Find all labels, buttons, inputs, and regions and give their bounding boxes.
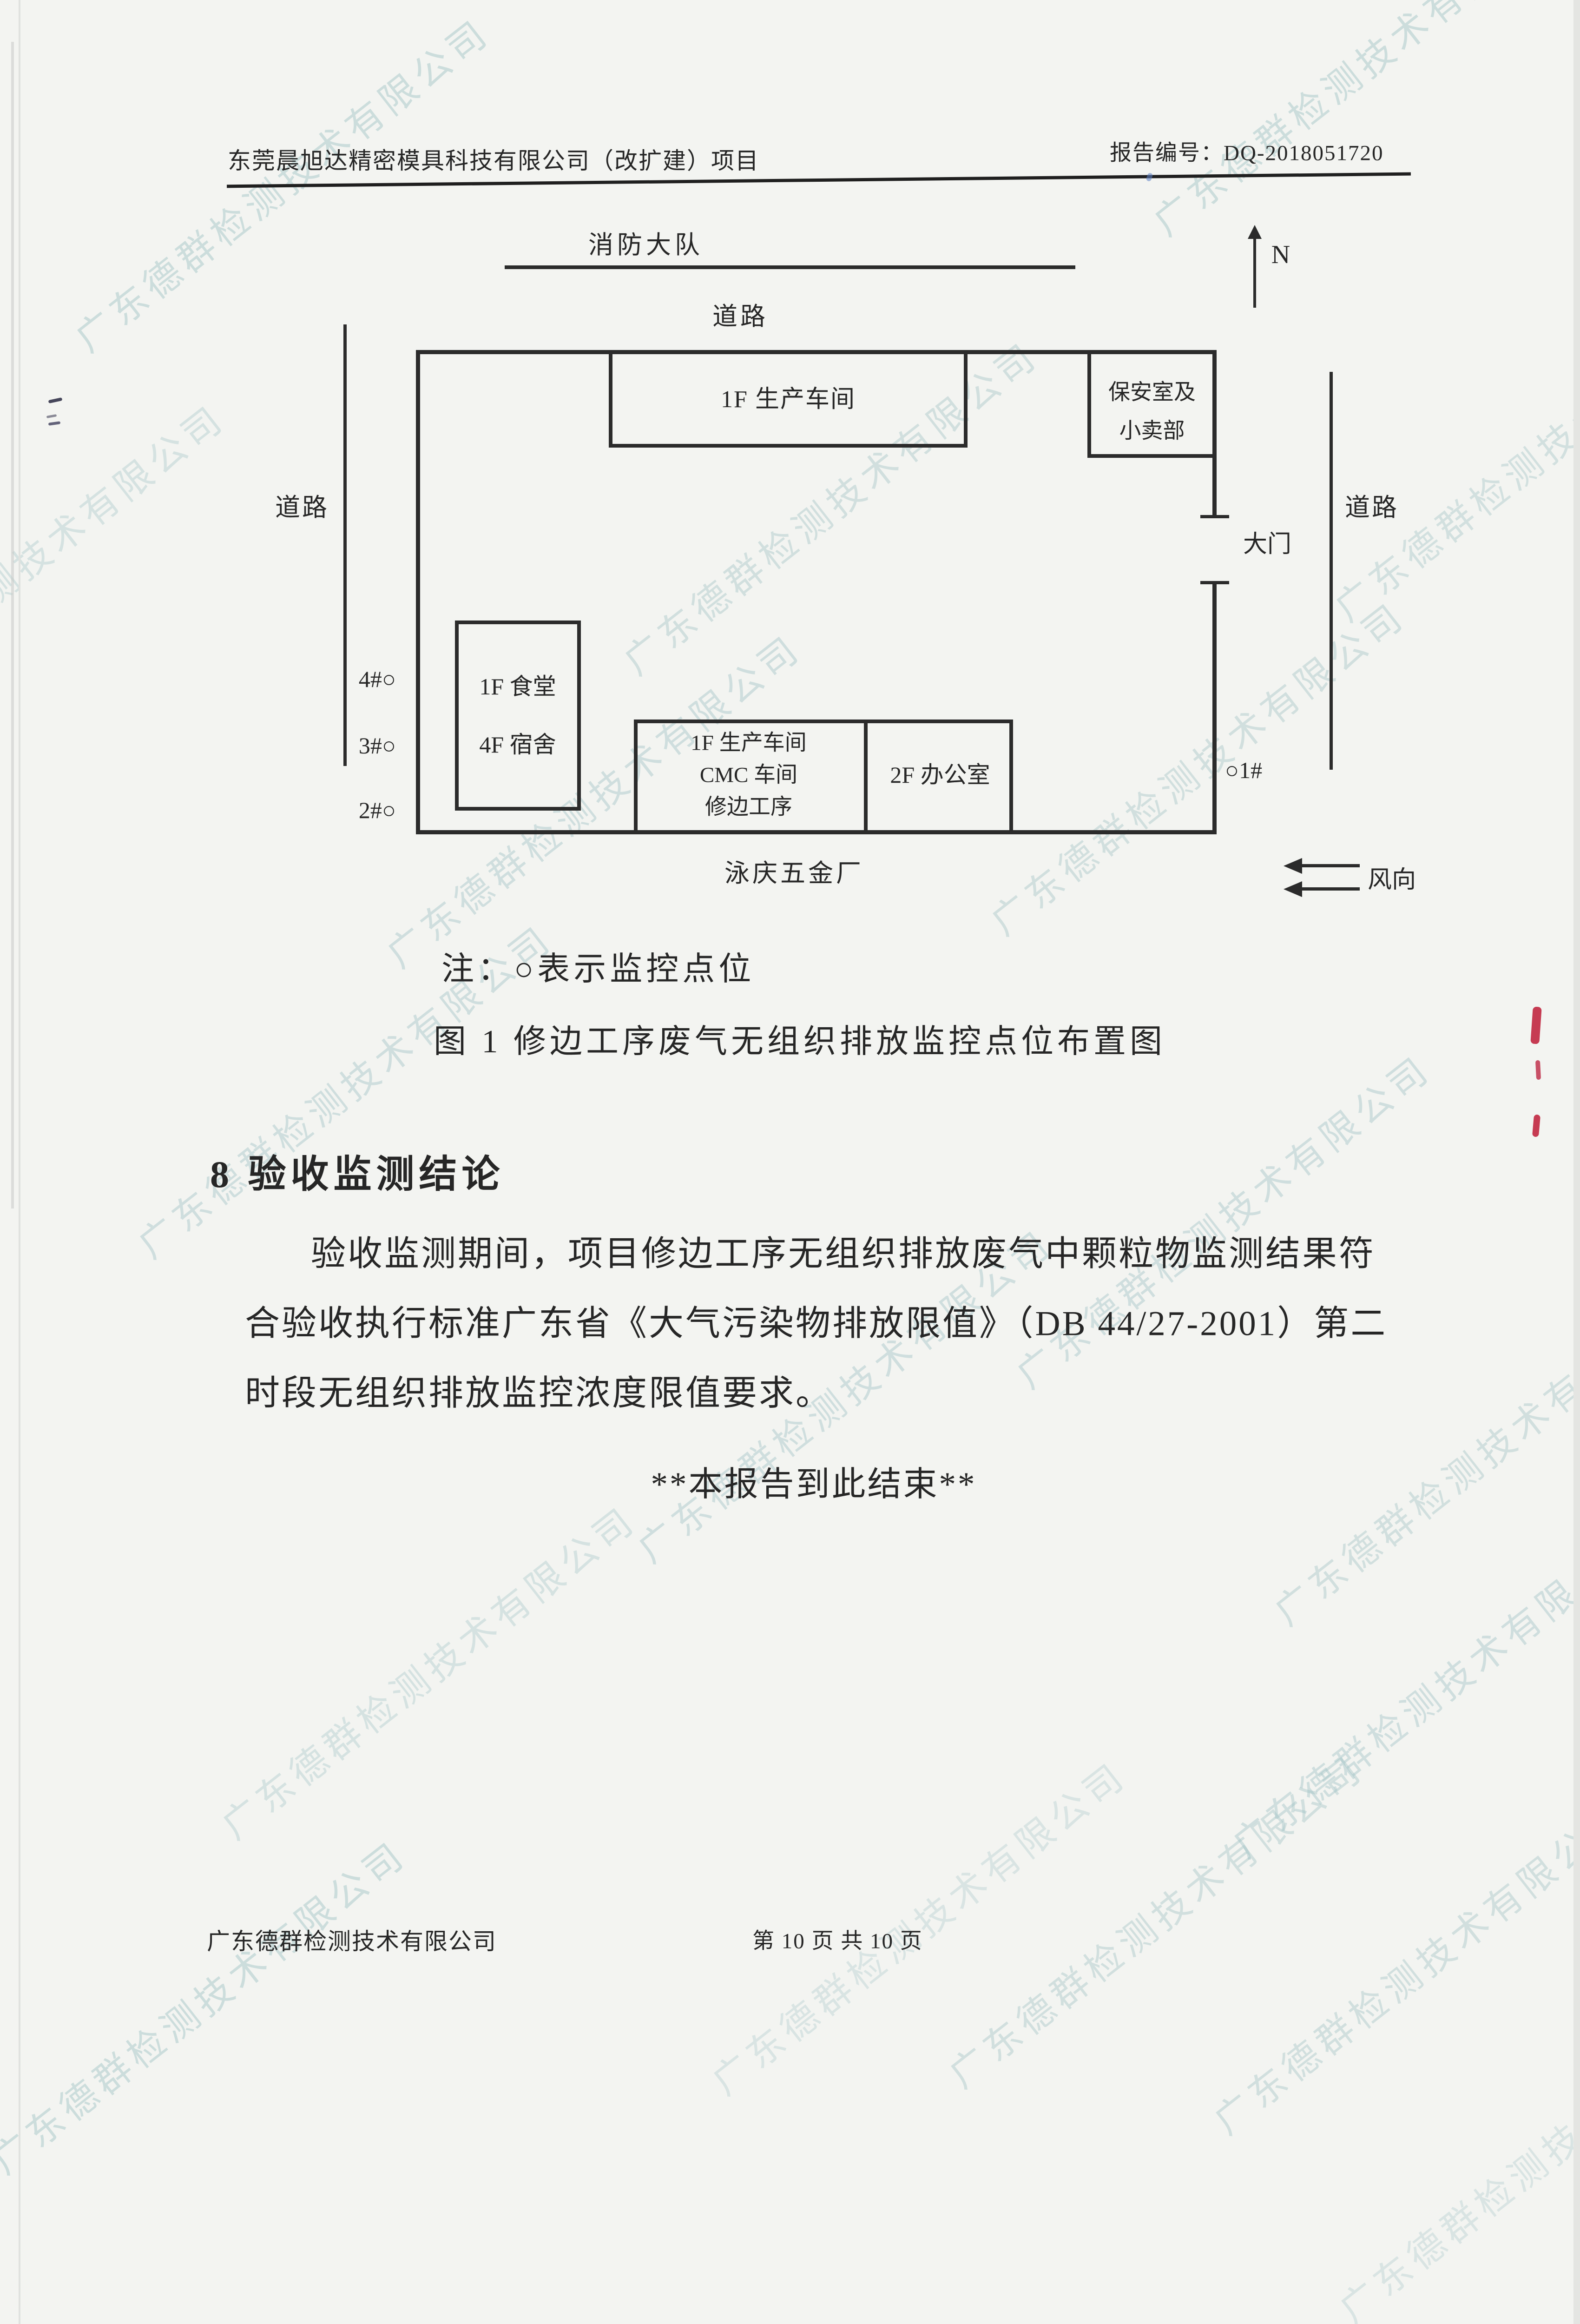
scan-edge-right <box>1573 0 1580 2324</box>
watermark-text: 广东德群检测技术有限公司 <box>1011 1050 1438 1395</box>
watermark-text: 广东德群检测技术有限公司 <box>216 1501 643 1846</box>
conclusion-line-1: 验收监测期间，项目修边工序无组织排放废气中颗粒物监测结果符 <box>311 1237 1376 1272</box>
factory-wall-left <box>416 350 420 834</box>
watermark-text: 广东德群检测技术有限公司 <box>0 1835 414 2181</box>
footer-company: 广东德群检测技术有限公司 <box>207 1930 497 1953</box>
neighbor-top-label: 消防大队 <box>588 232 704 257</box>
gray-pen-mark-1 <box>48 397 63 403</box>
gate-label: 大门 <box>1243 533 1291 557</box>
red-pen-mark-1 <box>1530 1006 1542 1044</box>
north-label: N <box>1271 242 1290 268</box>
watermark-text: 广东德群检测技术有限公司 <box>1329 283 1580 628</box>
header-rule <box>227 172 1411 188</box>
building-office-label: 2F 办公室 <box>890 763 990 786</box>
watermark-text: 广东德群检测技术有限公司 <box>943 1750 1370 2095</box>
north-arrow-head <box>1248 225 1262 239</box>
figure-note: 注：○表示监控点位 <box>441 953 755 986</box>
gate-tick-bottom <box>1200 581 1229 584</box>
building-guard-line2: 小卖部 <box>1119 421 1185 442</box>
red-pen-mark-2 <box>1535 1060 1541 1080</box>
scanned-report-page: 广东德群检测技术有限公司广东德群检测技术有限公司广东德群检测技术有限公司广东德群… <box>0 0 1580 2324</box>
road-top-line <box>505 265 1075 269</box>
scan-edge-left <box>19 0 20 2324</box>
factory-wall-right-lower <box>1212 582 1217 834</box>
footer-page-info: 第 10 页 共 10 页 <box>752 1931 923 1953</box>
figure-caption: 图 1 修边工序废气无组织排放监控点位布置图 <box>434 1026 1166 1058</box>
header-report-number: 报告编号：DQ-2018051720 <box>1110 143 1384 165</box>
building-canteen-line2: 4F 宿舍 <box>479 733 556 756</box>
road-top-label: 道路 <box>712 304 768 329</box>
road-right-label: 道路 <box>1345 495 1399 520</box>
watermark-text: 广东德群检测技术有限公司 <box>0 399 232 745</box>
road-right-line <box>1330 372 1333 770</box>
building-cmc-line2: CMC 车间 <box>700 765 797 786</box>
building-workshop-top-label: 1F 生产车间 <box>721 388 856 412</box>
conclusion-line-3: 时段无组织排放监控浓度限值要求。 <box>245 1376 832 1411</box>
watermark-text: 广东德群检测技术有限公司 <box>1148 0 1575 242</box>
watermark-text: 广东德群检测技术有限公司 <box>1208 1796 1580 2141</box>
road-left-label: 道路 <box>275 495 329 520</box>
conclusion-line-2: 合验收执行标准广东省《大气污染物排放限值》（DB 44/27-2001）第二 <box>245 1307 1387 1341</box>
north-arrow-shaft <box>1253 238 1256 308</box>
gate-tick-top <box>1200 515 1229 518</box>
wind-arrow-shaft-2 <box>1301 887 1360 891</box>
wind-arrow-shaft-1 <box>1301 864 1360 867</box>
scan-edge-left-dark <box>11 42 14 1208</box>
monitor-point-1: ○1# <box>1225 759 1262 782</box>
watermark-text: 广东德群检测技术有限公司 <box>1227 1519 1580 1865</box>
building-cmc-line1: 1F 生产车间 <box>691 733 806 754</box>
section-heading: 8 验收监测结论 <box>210 1155 505 1194</box>
building-guard-line1: 保安室及 <box>1108 382 1196 404</box>
report-end-marker: **本报告到此结束** <box>651 1467 977 1501</box>
neighbor-bottom-label: 泳庆五金厂 <box>724 861 864 886</box>
building-cmc-office-divider <box>864 720 868 834</box>
gray-pen-mark-3 <box>48 421 61 426</box>
gray-pen-mark-2 <box>46 414 57 418</box>
building-cmc-line3: 修边工序 <box>705 797 792 819</box>
wind-label: 风向 <box>1368 868 1416 892</box>
building-canteen-line1: 1F 食堂 <box>479 675 556 698</box>
road-left-line <box>343 324 347 766</box>
building-canteen-dorm <box>455 621 581 811</box>
blue-ink-speck <box>1145 172 1153 182</box>
monitor-point-4: 4#○ <box>359 667 396 691</box>
watermark-text: 广东德群检测技术有限公司 <box>1334 1984 1580 2324</box>
red-pen-mark-3 <box>1532 1114 1540 1137</box>
monitor-point-2: 2#○ <box>359 799 396 822</box>
monitor-point-3: 3#○ <box>359 734 396 757</box>
wind-arrow-head-2 <box>1284 881 1302 897</box>
header-project-title: 东莞晨旭达精密模具科技有限公司（改扩建）项目 <box>228 149 759 172</box>
wind-arrow-head-1 <box>1284 858 1302 874</box>
